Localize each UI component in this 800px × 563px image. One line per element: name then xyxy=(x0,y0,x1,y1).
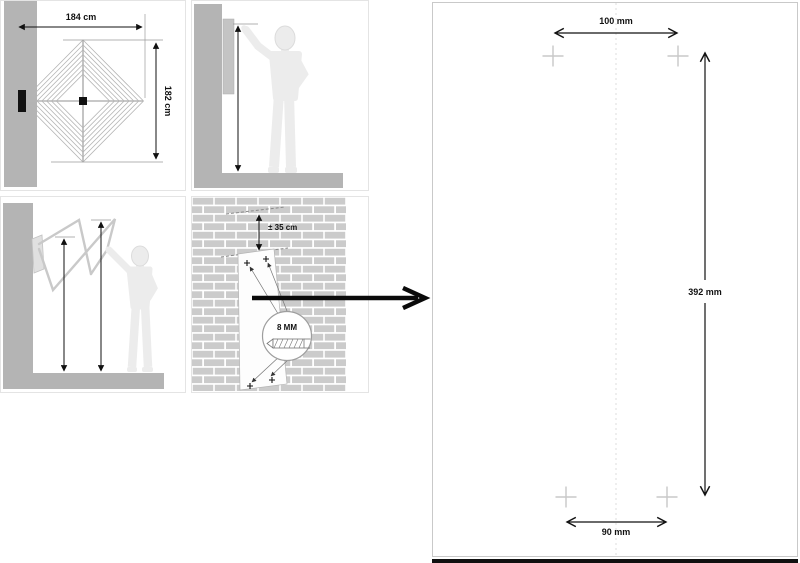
extension-lines xyxy=(51,14,163,162)
drill-cross-icon xyxy=(668,46,689,67)
dryer-front-diagram: 184 cm 182 cm xyxy=(1,1,185,190)
drill-template-panel: 100 mm 392 mm 90 mm xyxy=(432,2,798,557)
hand xyxy=(106,247,111,252)
foot-left xyxy=(127,367,137,372)
panel-reach-open-dryer xyxy=(0,196,186,393)
drill-cross-icon xyxy=(657,487,678,508)
reach-open-diagram xyxy=(1,197,185,392)
person-figure xyxy=(106,246,154,372)
floor-strip xyxy=(194,173,343,188)
raised-arm xyxy=(246,30,275,59)
drill-bit-icon xyxy=(267,339,311,348)
drill-detail-circle xyxy=(263,312,312,361)
height-dimension-label: 182 cm xyxy=(163,86,173,117)
width-dimension-label: 184 cm xyxy=(66,12,97,22)
template-bottom-bar xyxy=(432,559,798,563)
drill-cross-icon xyxy=(543,46,564,67)
foot-right xyxy=(285,167,297,173)
wall-bracket xyxy=(18,90,26,112)
open-dryer-frame xyxy=(39,219,115,290)
panel-dryer-front-view: 184 cm 182 cm xyxy=(0,0,186,191)
floor-strip xyxy=(3,373,164,389)
head xyxy=(275,26,295,50)
hand xyxy=(241,25,247,31)
foot-left xyxy=(268,167,279,173)
raised-arm xyxy=(109,250,132,273)
top-spacing-label: 100 mm xyxy=(599,16,633,26)
dryer-hub xyxy=(79,97,87,105)
person-figure xyxy=(241,25,304,173)
drill-diameter-label: 8 MM xyxy=(277,323,297,332)
wall-strip xyxy=(194,4,222,188)
reach-closed-diagram xyxy=(192,1,368,190)
foot-right xyxy=(142,367,153,372)
offset-dimension-label: ± 35 cm xyxy=(268,223,297,232)
folded-dryer xyxy=(223,19,234,94)
wall-strip xyxy=(3,203,33,373)
vertical-spacing-label: 392 mm xyxy=(688,287,722,297)
bottom-spacing-label: 90 mm xyxy=(602,527,631,537)
drill-cross-icon xyxy=(556,487,577,508)
pointer-arrow-icon xyxy=(252,286,432,310)
panel-reach-closed-dryer xyxy=(191,0,369,191)
installation-instruction-sheet: 184 cm 182 cm xyxy=(0,0,800,563)
head xyxy=(132,246,149,266)
drill-template-diagram: 100 mm 392 mm 90 mm xyxy=(433,3,797,556)
